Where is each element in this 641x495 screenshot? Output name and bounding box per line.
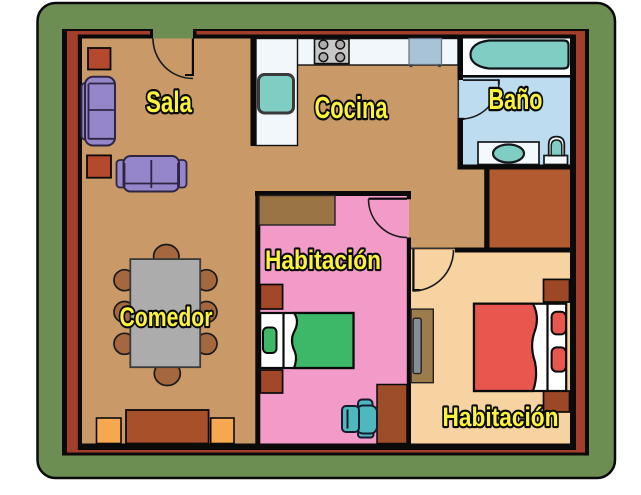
svg-text:Habitación: Habitación xyxy=(443,402,559,432)
svg-text:Baño: Baño xyxy=(489,84,543,116)
svg-text:Sala: Sala xyxy=(146,86,192,119)
svg-text:Comedor: Comedor xyxy=(120,302,213,332)
svg-text:Habitación: Habitación xyxy=(265,245,381,275)
svg-text:Cocina: Cocina xyxy=(315,90,389,125)
